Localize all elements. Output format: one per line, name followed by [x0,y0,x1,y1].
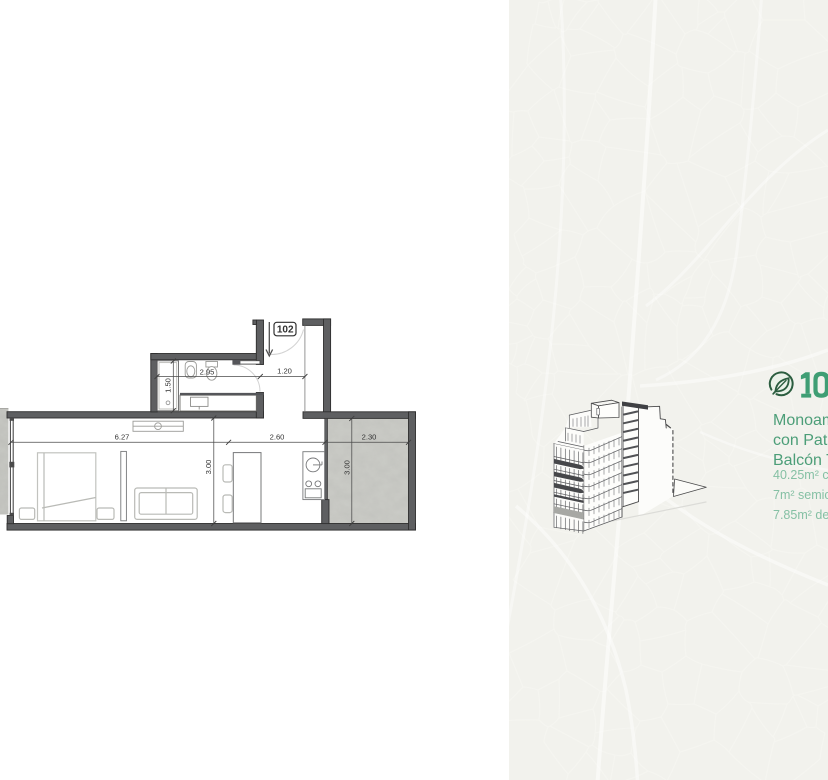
svg-text:2.60: 2.60 [270,433,285,442]
svg-text:1.20: 1.20 [277,367,292,376]
svg-text:6.27: 6.27 [115,433,130,442]
svg-text:102: 102 [277,325,294,336]
svg-text:2.95: 2.95 [200,367,215,376]
svg-text:2.30: 2.30 [362,433,377,442]
svg-text:3.00: 3.00 [204,460,213,475]
svg-text:3.00: 3.00 [343,460,352,475]
svg-text:1.50: 1.50 [164,378,173,393]
